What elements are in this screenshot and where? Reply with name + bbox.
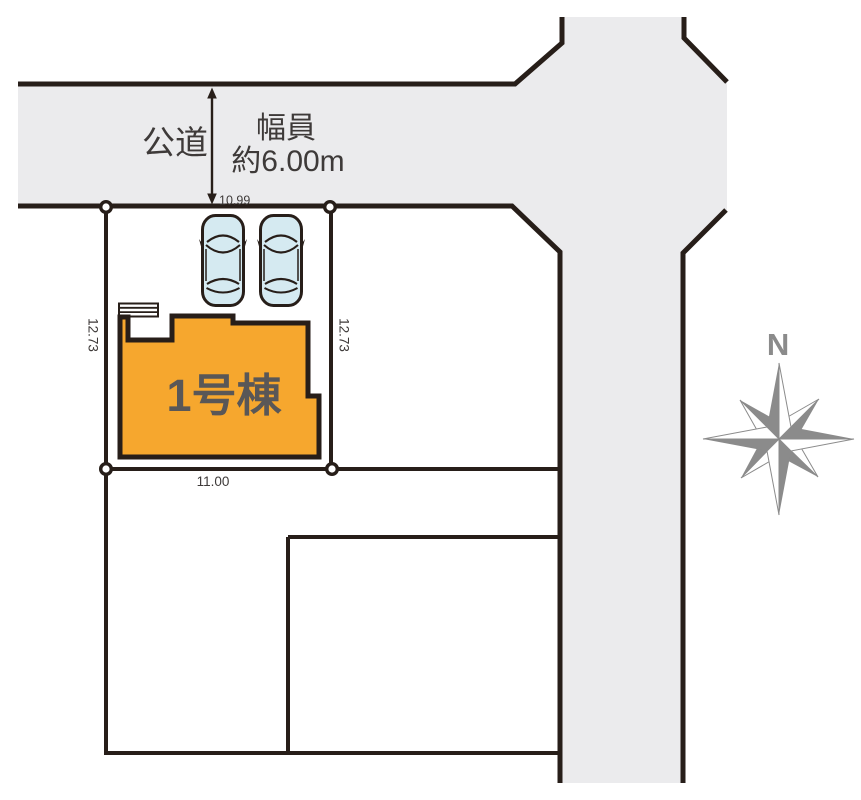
road-name-label: 公道 [142,124,208,161]
bottom-width-dimension: 11.00 [197,474,230,489]
depth-dimension-left: 12.73 [86,318,101,352]
compass-rose-icon: N [703,327,854,515]
corner-marker-icon [101,464,112,475]
building-1-label: 1号棟 [166,370,282,421]
road-edge-right-lower [683,210,726,783]
corner-marker-icon [325,202,336,213]
compass-north-label: N [767,327,789,362]
road-width-label-2: 約6.00m [231,145,344,178]
site-plan: 公道 幅員 約6.00m 10.99 1号棟 12.73 1 [0,0,861,800]
corner-marker-icon [327,464,338,475]
frontage-dimension: 10.99 [219,194,250,208]
car-icon [199,216,247,306]
road-width-label-1: 幅員 [256,112,316,145]
road-edge-top [18,17,562,84]
depth-dimension-right: 12.73 [337,318,352,352]
car-icon [257,216,305,306]
corner-marker-icon [101,202,112,213]
site-plan-drawing: 公道 幅員 約6.00m 10.99 1号棟 12.73 1 [0,0,861,800]
